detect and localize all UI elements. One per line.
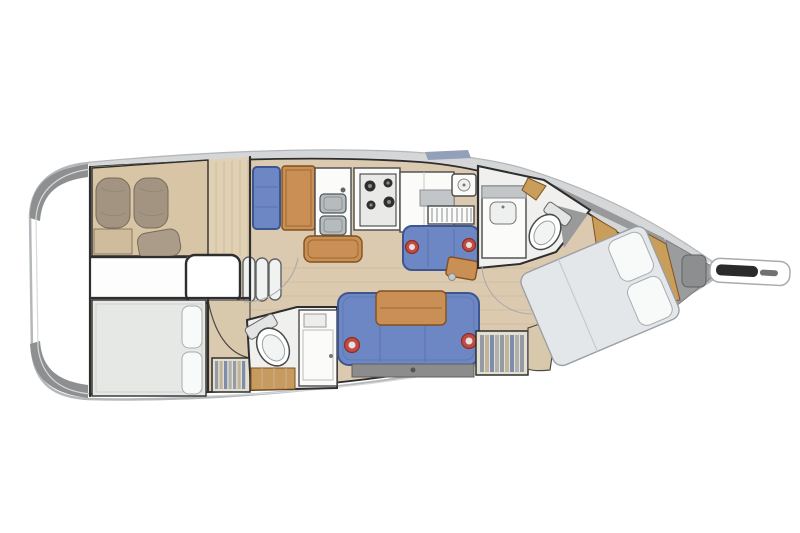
rolled-pillow	[134, 178, 168, 228]
berth-shelf	[94, 229, 132, 254]
head-wood-floor	[251, 368, 295, 390]
locker-stripe	[490, 335, 494, 372]
nav-seat	[253, 167, 280, 229]
berth-infill	[90, 258, 186, 298]
yacht-floor-plan	[0, 0, 800, 533]
locker-stripe	[215, 361, 218, 389]
hand-sink	[452, 174, 476, 196]
aft-starboard-cabin	[92, 300, 206, 396]
anchor-roller	[716, 264, 759, 277]
locker-stripe	[233, 361, 236, 389]
mast-post	[449, 274, 456, 281]
vanity-with-sink	[482, 186, 526, 258]
locker-stripe	[485, 335, 489, 372]
latch	[411, 368, 416, 373]
door-handle	[329, 354, 333, 358]
companionway-step	[269, 259, 281, 300]
headboard-cushion	[182, 352, 202, 394]
locker-stripe	[224, 361, 227, 389]
headboard-cushion	[182, 306, 202, 348]
rolled-pillow	[96, 178, 130, 228]
bow-fitting	[760, 269, 778, 276]
counter-lid	[420, 190, 454, 206]
bowsprit	[709, 258, 790, 286]
companionway-step	[256, 258, 268, 301]
vanity-cabinet	[299, 310, 337, 386]
washbasin	[490, 202, 516, 224]
aft-head	[244, 307, 337, 390]
aft-port-cabin	[90, 157, 250, 261]
locker-stripe	[510, 335, 514, 372]
locker-stripe	[505, 335, 509, 372]
storage-base	[352, 364, 474, 377]
hanging-locker	[212, 358, 250, 392]
anchor-chain	[682, 255, 706, 287]
stove	[354, 168, 400, 230]
nav-station	[253, 166, 315, 230]
locker-stripe	[515, 335, 519, 372]
companionway-landing	[186, 255, 240, 303]
faucet	[341, 188, 346, 193]
locker-stripe	[220, 361, 223, 389]
locker-stripe	[520, 335, 524, 372]
locker-stripe	[242, 361, 245, 389]
locker-stripe	[480, 335, 484, 372]
locker-stripe	[229, 361, 232, 389]
hanging-locker	[476, 331, 528, 375]
chart-table	[282, 166, 315, 230]
locker-stripe	[495, 335, 499, 372]
locker-stripe	[500, 335, 504, 372]
locker-stripe	[238, 361, 241, 389]
dining-table	[376, 291, 446, 325]
dish-rack	[428, 206, 474, 224]
vanity-sink	[304, 314, 326, 327]
floor-plan-svg	[0, 0, 800, 533]
faucet	[502, 206, 505, 209]
companionway	[186, 255, 281, 303]
